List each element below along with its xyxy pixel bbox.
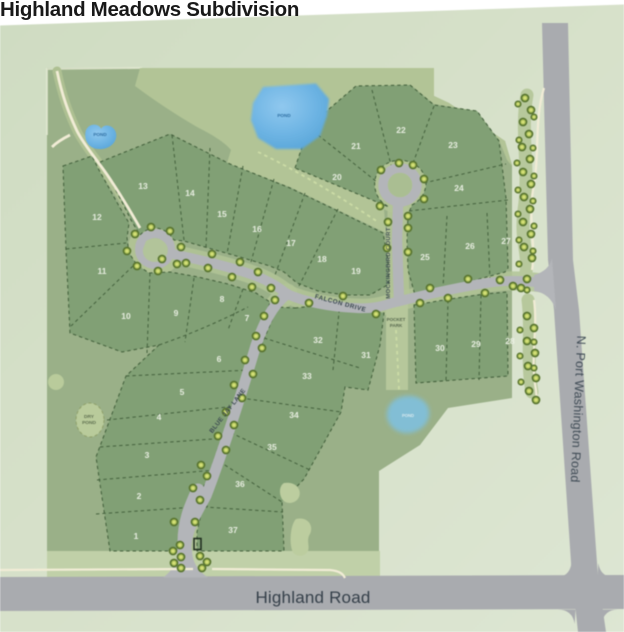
svg-text:POCKET: POCKET (387, 317, 406, 322)
svg-text:DRY: DRY (84, 414, 95, 420)
svg-text:11: 11 (98, 266, 107, 276)
svg-text:23: 23 (448, 140, 458, 150)
svg-text:33: 33 (302, 371, 312, 381)
svg-text:8: 8 (220, 294, 225, 304)
svg-text:36: 36 (235, 479, 245, 489)
svg-text:POND: POND (402, 413, 414, 418)
svg-text:21: 21 (351, 141, 361, 151)
svg-text:20: 20 (332, 172, 342, 182)
svg-text:4: 4 (157, 412, 162, 422)
svg-text:17: 17 (286, 238, 296, 248)
svg-text:29: 29 (471, 339, 481, 349)
svg-text:7: 7 (245, 313, 250, 323)
svg-text:POND: POND (277, 113, 291, 118)
svg-text:2: 2 (137, 491, 142, 501)
svg-text:Highland Road: Highland Road (255, 588, 370, 607)
svg-text:14: 14 (185, 188, 195, 198)
svg-text:31: 31 (361, 350, 371, 360)
svg-text:35: 35 (267, 442, 277, 452)
svg-text:12: 12 (92, 212, 102, 222)
svg-text:5: 5 (180, 387, 185, 397)
svg-text:25: 25 (420, 252, 430, 262)
svg-text:37: 37 (228, 525, 238, 535)
svg-text:24: 24 (454, 183, 464, 193)
svg-text:1: 1 (134, 531, 139, 541)
svg-text:MOCKINGBIRD COURT: MOCKINGBIRD COURT (386, 227, 392, 298)
svg-text:27: 27 (501, 236, 511, 246)
svg-text:13: 13 (138, 181, 148, 191)
svg-text:22: 22 (396, 125, 406, 135)
svg-text:34: 34 (289, 410, 299, 420)
svg-text:32: 32 (313, 335, 323, 345)
svg-text:9: 9 (174, 308, 179, 318)
svg-text:POND: POND (82, 420, 96, 426)
svg-text:10: 10 (121, 311, 131, 321)
svg-text:16: 16 (252, 224, 262, 234)
svg-text:15: 15 (217, 209, 227, 219)
svg-text:3: 3 (145, 450, 150, 460)
svg-text:6: 6 (217, 354, 222, 364)
svg-text:POND: POND (93, 132, 107, 137)
svg-text:19: 19 (351, 266, 361, 276)
svg-text:18: 18 (317, 254, 327, 264)
svg-text:28: 28 (505, 336, 515, 346)
svg-text:PARK: PARK (390, 323, 403, 328)
svg-text:30: 30 (435, 343, 445, 353)
svg-text:26: 26 (465, 241, 475, 251)
